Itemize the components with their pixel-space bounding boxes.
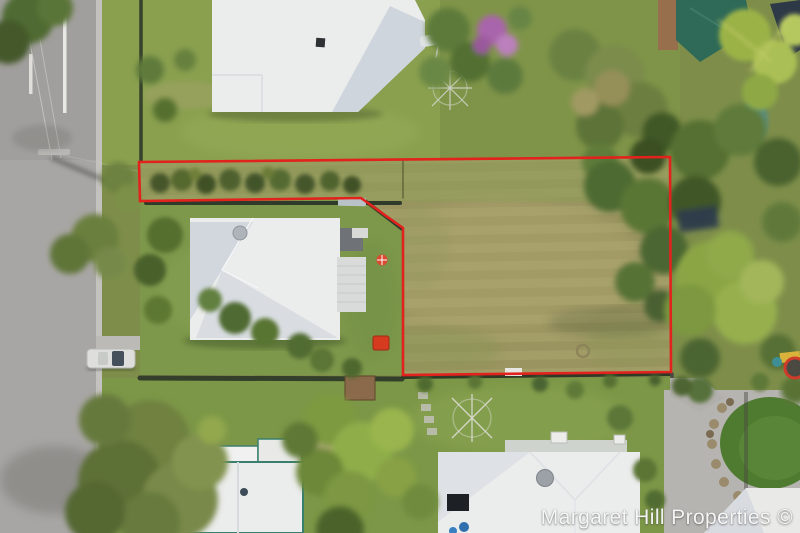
shed-white-panel	[352, 228, 368, 238]
roof-vent	[316, 38, 326, 48]
aerial-photo	[0, 0, 800, 533]
water-tank	[537, 470, 554, 487]
teal-pool-toy	[772, 357, 782, 367]
aerial-photo-stage: Margaret Hill Properties ©	[0, 0, 800, 533]
road-lane-dash	[29, 54, 33, 94]
roof-fixture	[240, 488, 248, 496]
crossover-driveway	[96, 336, 140, 350]
whirlybird-vent	[233, 226, 247, 240]
red-cubby-toy	[373, 336, 389, 350]
tree-shadow-on-road	[12, 125, 72, 151]
brick-wall	[658, 0, 678, 50]
white-car	[87, 349, 135, 368]
ac-unit	[614, 435, 625, 444]
car-windshield	[112, 351, 124, 366]
ac-unit	[551, 432, 567, 443]
blue-bin	[459, 522, 469, 532]
dark-courtyard	[447, 494, 469, 511]
car-rear-window	[98, 352, 108, 365]
garden-shed	[345, 376, 375, 400]
trampoline	[785, 358, 800, 378]
